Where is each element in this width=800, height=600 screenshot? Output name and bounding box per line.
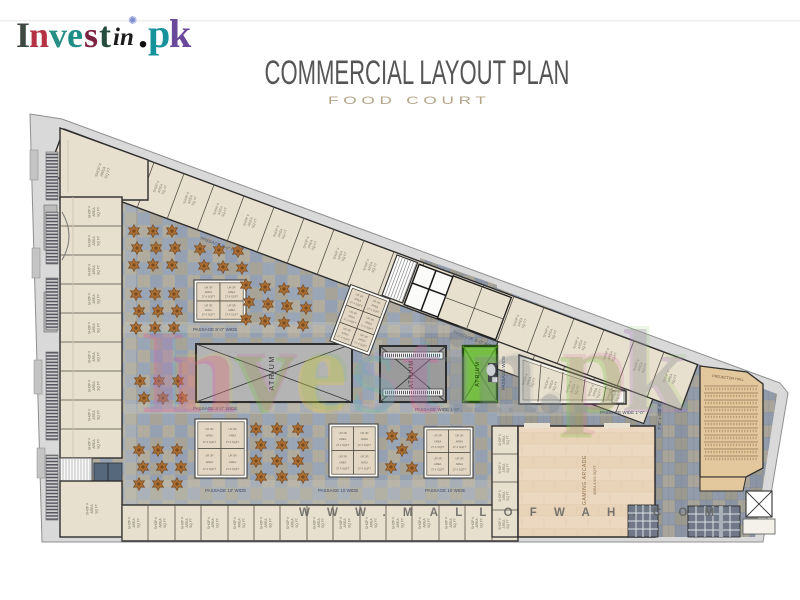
svg-text:27.4 SQFT: 27.4 SQFT xyxy=(453,445,467,449)
svg-text:SQ FT: SQ FT xyxy=(96,207,100,217)
svg-text:p: p xyxy=(148,11,170,56)
svg-text:27.4 SQFT: 27.4 SQFT xyxy=(336,443,350,447)
svg-text:UR 3R: UR 3R xyxy=(228,285,236,289)
svg-text:AREA: AREA xyxy=(228,290,236,294)
svg-text:AREA: AREA xyxy=(211,518,215,528)
svg-text:SQ FT: SQ FT xyxy=(94,504,98,514)
svg-text:PASSAGE 10' WIDE: PASSAGE 10' WIDE xyxy=(205,488,246,493)
svg-text:SQ FT: SQ FT xyxy=(506,519,510,528)
svg-text:AREA: AREA xyxy=(434,439,442,443)
svg-text:27.4 SQFT: 27.4 SQFT xyxy=(431,445,445,449)
svg-text:27.4 SQFT: 27.4 SQFT xyxy=(203,467,217,471)
svg-text:SQ FT: SQ FT xyxy=(242,518,246,528)
svg-text:SQ FT: SQ FT xyxy=(453,518,457,528)
svg-text:AREA: AREA xyxy=(290,518,294,528)
svg-text:AREA 4,900 SQ FT: AREA 4,900 SQ FT xyxy=(593,465,597,494)
svg-text:t: t xyxy=(99,15,111,55)
svg-text:SHOP #: SHOP # xyxy=(233,517,237,529)
svg-text:WWW.MALLOFWAH.COM: WWW.MALLOFWAH.COM xyxy=(299,507,731,519)
svg-text:AREA: AREA xyxy=(92,265,96,275)
svg-text:27.4 SQFT: 27.4 SQFT xyxy=(225,294,239,298)
svg-text:SQ FT: SQ FT xyxy=(480,518,484,528)
svg-text:27.4 SQFT: 27.4 SQFT xyxy=(358,467,372,471)
svg-text:PASSAGE 10 WIDE: PASSAGE 10 WIDE xyxy=(425,488,465,493)
svg-text:AREA: AREA xyxy=(343,518,347,528)
svg-text:AREA: AREA xyxy=(339,461,347,465)
svg-text:SHOP #: SHOP # xyxy=(88,351,92,363)
svg-text:SQ FT: SQ FT xyxy=(163,518,167,528)
svg-text:SHOP #: SHOP # xyxy=(88,409,92,421)
svg-text:F O O D C O U R T: F O O D C O U R T xyxy=(328,95,486,107)
svg-text:27.4 SQFT: 27.4 SQFT xyxy=(202,294,216,298)
svg-text:UR 3R: UR 3R xyxy=(229,454,237,458)
svg-text:n: n xyxy=(474,302,541,435)
svg-text:SQ FT: SQ FT xyxy=(96,352,100,362)
svg-text:SQ FT: SQ FT xyxy=(268,518,272,528)
svg-text:i: i xyxy=(444,302,477,435)
svg-text:SQ FT: SQ FT xyxy=(96,294,100,304)
svg-text:in: in xyxy=(113,24,134,51)
svg-text:AREA: AREA xyxy=(434,462,442,466)
svg-text:I: I xyxy=(16,15,30,55)
svg-text:AREA: AREA xyxy=(92,352,96,362)
svg-text:SHOP #: SHOP # xyxy=(88,293,92,305)
svg-text:AREA: AREA xyxy=(229,460,237,464)
svg-text:AREA: AREA xyxy=(92,439,96,449)
svg-text:s: s xyxy=(84,15,98,55)
svg-text:s: s xyxy=(354,302,401,435)
svg-text:v: v xyxy=(49,15,67,55)
svg-text:SHOP #: SHOP # xyxy=(207,517,211,529)
svg-text:AREA: AREA xyxy=(422,518,426,528)
svg-text:SQ FT: SQ FT xyxy=(216,518,220,528)
svg-text:AREA: AREA xyxy=(132,518,136,528)
svg-text:SHOP #: SHOP # xyxy=(88,206,92,218)
svg-text:AREA: AREA xyxy=(370,518,374,528)
svg-text:SHOP #: SHOP # xyxy=(180,517,184,529)
svg-text:SHOP #: SHOP # xyxy=(88,264,92,276)
svg-text:SQ FT: SQ FT xyxy=(136,518,140,528)
svg-text:SHOP #: SHOP # xyxy=(88,235,92,247)
svg-text:t: t xyxy=(404,302,444,435)
svg-text:SHOP #: SHOP # xyxy=(88,438,92,450)
svg-text:n: n xyxy=(173,302,240,435)
svg-text:AREA: AREA xyxy=(92,323,96,333)
svg-text:✺: ✺ xyxy=(128,15,137,27)
svg-text:SQ FT: SQ FT xyxy=(374,518,378,528)
svg-text:AREA: AREA xyxy=(92,294,96,304)
svg-text:27.4 SQFT: 27.4 SQFT xyxy=(203,440,217,444)
svg-text:SHOP #: SHOP # xyxy=(154,517,158,529)
svg-text:AREA: AREA xyxy=(475,518,479,528)
svg-text:SQ FT: SQ FT xyxy=(400,518,404,528)
svg-text:SQ FT: SQ FT xyxy=(96,323,100,333)
svg-text:UR 3R: UR 3R xyxy=(434,456,442,460)
svg-text:AREA: AREA xyxy=(238,518,242,528)
svg-text:UR 3R: UR 3R xyxy=(455,456,463,460)
svg-text:AREA: AREA xyxy=(264,518,268,528)
svg-text:27.4 SQFT: 27.4 SQFT xyxy=(336,467,350,471)
svg-text:UR 3R: UR 3R xyxy=(360,455,368,459)
svg-text:SHOP #: SHOP # xyxy=(88,380,92,392)
svg-text:AREA: AREA xyxy=(205,290,213,294)
svg-text:SQ FT: SQ FT xyxy=(321,518,325,528)
svg-text:p: p xyxy=(562,302,629,435)
svg-text:27.4 SQFT: 27.4 SQFT xyxy=(431,468,445,472)
svg-text:27.4 SQFT: 27.4 SQFT xyxy=(358,443,372,447)
svg-text:v: v xyxy=(237,302,297,435)
svg-text:SQ FT: SQ FT xyxy=(348,518,352,528)
svg-text:e: e xyxy=(297,302,350,435)
svg-text:.: . xyxy=(138,11,148,56)
svg-text:SHOP #: SHOP # xyxy=(128,517,132,529)
svg-text:SHOP #: SHOP # xyxy=(88,322,92,334)
svg-text:SHOP #: SHOP # xyxy=(286,517,290,529)
svg-text:AREA: AREA xyxy=(456,439,464,443)
svg-text:AREA: AREA xyxy=(185,518,189,528)
svg-text:n: n xyxy=(29,15,49,55)
svg-text:SQ FT: SQ FT xyxy=(506,463,510,472)
svg-text:27.4 SQFT: 27.4 SQFT xyxy=(226,467,240,471)
svg-text:AREA: AREA xyxy=(158,518,162,528)
svg-text:AREA: AREA xyxy=(92,207,96,217)
svg-text:AREA: AREA xyxy=(361,461,369,465)
svg-text:SQ FT: SQ FT xyxy=(189,518,193,528)
svg-text:AREA: AREA xyxy=(396,518,400,528)
svg-text:k: k xyxy=(169,11,192,56)
svg-text:PASSAGE 10 WIDE: PASSAGE 10 WIDE xyxy=(318,488,358,493)
svg-text:SQ FT: SQ FT xyxy=(96,439,100,449)
svg-text:AREA: AREA xyxy=(92,410,96,420)
svg-text:k: k xyxy=(624,302,691,435)
svg-text:AREA: AREA xyxy=(206,460,214,464)
svg-text:SQ FT: SQ FT xyxy=(295,518,299,528)
svg-text:SQ FT: SQ FT xyxy=(506,491,510,500)
svg-text:AREA: AREA xyxy=(92,236,96,246)
svg-text:SQ FT: SQ FT xyxy=(427,518,431,528)
svg-text:AREA: AREA xyxy=(449,518,453,528)
svg-text:UR 3R: UR 3R xyxy=(339,455,347,459)
svg-text:SQ FT: SQ FT xyxy=(96,381,100,391)
svg-text:27.4 SQFT: 27.4 SQFT xyxy=(453,468,467,472)
svg-text:27.4 SQFT: 27.4 SQFT xyxy=(226,440,240,444)
svg-text:SHOP #: SHOP # xyxy=(86,503,90,515)
svg-text:COMMERCIAL LAYOUT PLAN: COMMERCIAL LAYOUT PLAN xyxy=(265,54,570,92)
svg-text:SQ FT: SQ FT xyxy=(96,410,100,420)
svg-text:AREA: AREA xyxy=(317,518,321,528)
svg-text:SQ FT: SQ FT xyxy=(96,265,100,275)
svg-text:e: e xyxy=(67,15,83,55)
svg-text:UR 3R: UR 3R xyxy=(204,285,212,289)
svg-text:SQ FT: SQ FT xyxy=(96,236,100,246)
svg-text:UR 3R: UR 3R xyxy=(205,454,213,458)
svg-text:AREA: AREA xyxy=(90,504,94,514)
svg-text:AREA: AREA xyxy=(456,462,464,466)
svg-text:SHOP #: SHOP # xyxy=(260,517,264,529)
svg-text:AREA: AREA xyxy=(92,381,96,391)
svg-text:GAMING ARCADE: GAMING ARCADE xyxy=(582,455,588,505)
